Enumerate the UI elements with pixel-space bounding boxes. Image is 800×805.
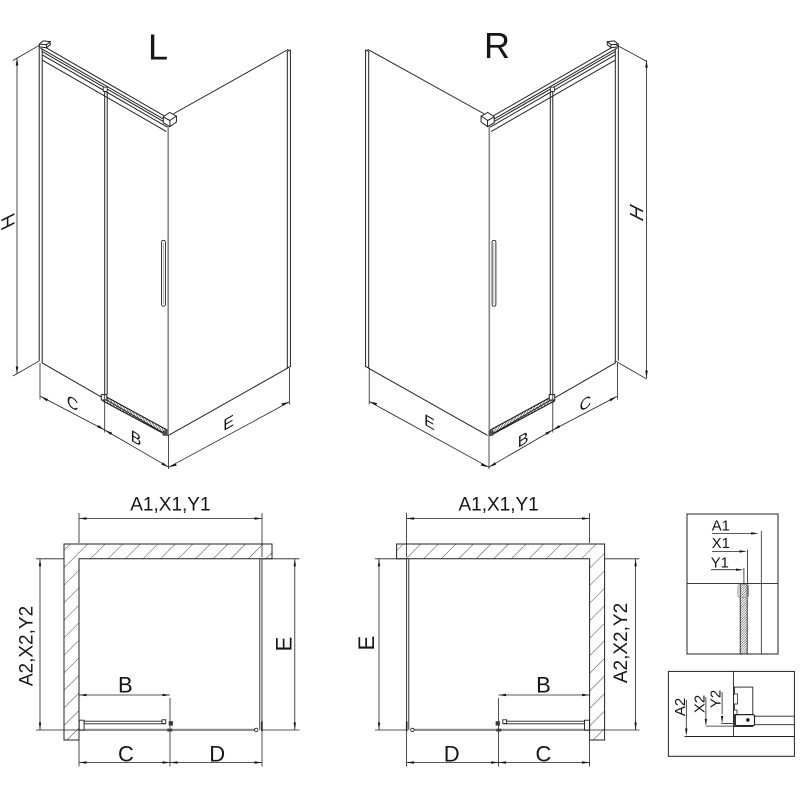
svg-text:A2,X2,Y2: A2,X2,Y2 [17,606,38,686]
svg-text:A2,X2,Y2: A2,X2,Y2 [611,603,632,683]
svg-text:A1,X1,Y1: A1,X1,Y1 [458,495,538,516]
svg-text:D: D [444,741,460,766]
svg-text:R: R [484,25,510,66]
svg-text:A2: A2 [672,698,689,716]
svg-text:B: B [118,672,133,697]
svg-text:X2: X2 [691,695,708,713]
svg-text:X1: X1 [712,536,730,552]
svg-text:E: E [354,636,379,651]
svg-text:Y1: Y1 [711,556,729,572]
svg-text:A1: A1 [712,518,730,534]
svg-text:B: B [536,672,551,697]
svg-text:C: C [536,741,552,766]
svg-text:L: L [148,27,168,68]
svg-text:A1,X1,Y1: A1,X1,Y1 [130,495,210,516]
svg-text:D: D [209,741,225,766]
svg-text:E: E [272,637,297,652]
svg-text:Y2: Y2 [708,690,725,708]
svg-text:C: C [118,741,134,766]
